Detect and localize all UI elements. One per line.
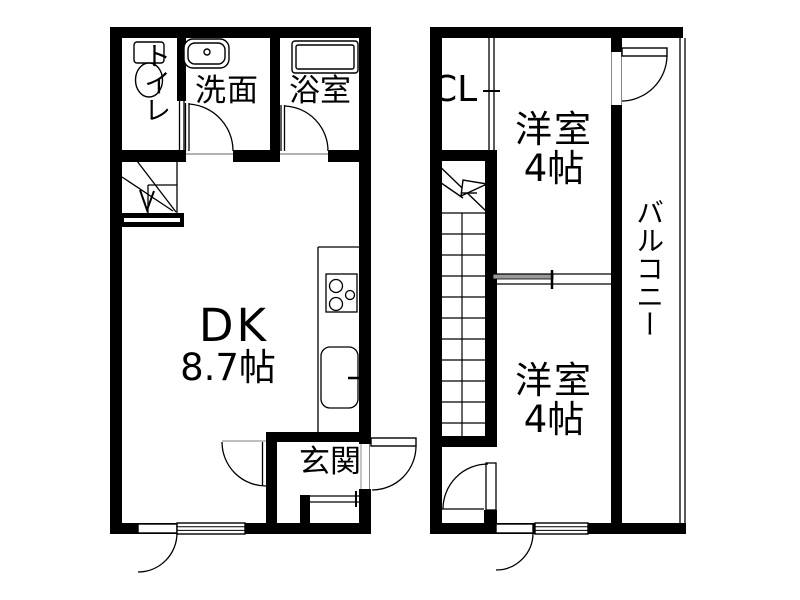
dining-kitchen-label: DK (195, 303, 273, 350)
floorplan: トイレ 洗面 浴室 DK 8.7帖 玄関 CL 洋室 4帖 洋室 4帖 バルコニ… (0, 0, 800, 600)
balcony-door (612, 48, 668, 105)
washroom-label: 洗面 (183, 75, 271, 107)
entrance-step (310, 491, 360, 507)
washroom-door (186, 103, 234, 151)
floor2-bottom-window (535, 523, 588, 534)
entrance-hall-door (222, 442, 267, 486)
toilet-door (180, 101, 185, 152)
stair-wall-stripe (124, 218, 180, 222)
floor2-bottom-door (496, 524, 533, 570)
floorplan-drawing (0, 0, 800, 600)
closet-label: CL (432, 71, 477, 108)
dining-kitchen-size: 8.7帖 (172, 349, 284, 387)
bathroom-door (281, 105, 328, 151)
floor1-thresholds (186, 154, 328, 441)
closet-door (483, 38, 500, 150)
front-door (361, 438, 416, 490)
kitchen-sink-fixture (321, 347, 363, 408)
landing-door (443, 463, 496, 510)
room-top-label: 洋室 (513, 111, 595, 149)
room-partition-sliding-door (493, 270, 611, 289)
bathroom-label: 浴室 (279, 75, 361, 107)
room-top-size: 4帖 (513, 150, 595, 188)
bathtub-fixture (292, 41, 358, 73)
room-bottom-label: 洋室 (513, 362, 595, 400)
stove-fixture (326, 274, 357, 312)
room-bottom-size: 4帖 (513, 401, 595, 439)
balcony-label: バルコニー (634, 198, 663, 368)
stairs-1f (122, 161, 177, 213)
washbasin-fixture (184, 39, 229, 68)
toilet-label: トイレ (140, 42, 168, 123)
floor1-bottom-window (177, 523, 245, 534)
entrance-label: 玄関 (297, 446, 363, 478)
floor1-bottom-door (138, 524, 177, 572)
balcony-railing (680, 38, 685, 523)
